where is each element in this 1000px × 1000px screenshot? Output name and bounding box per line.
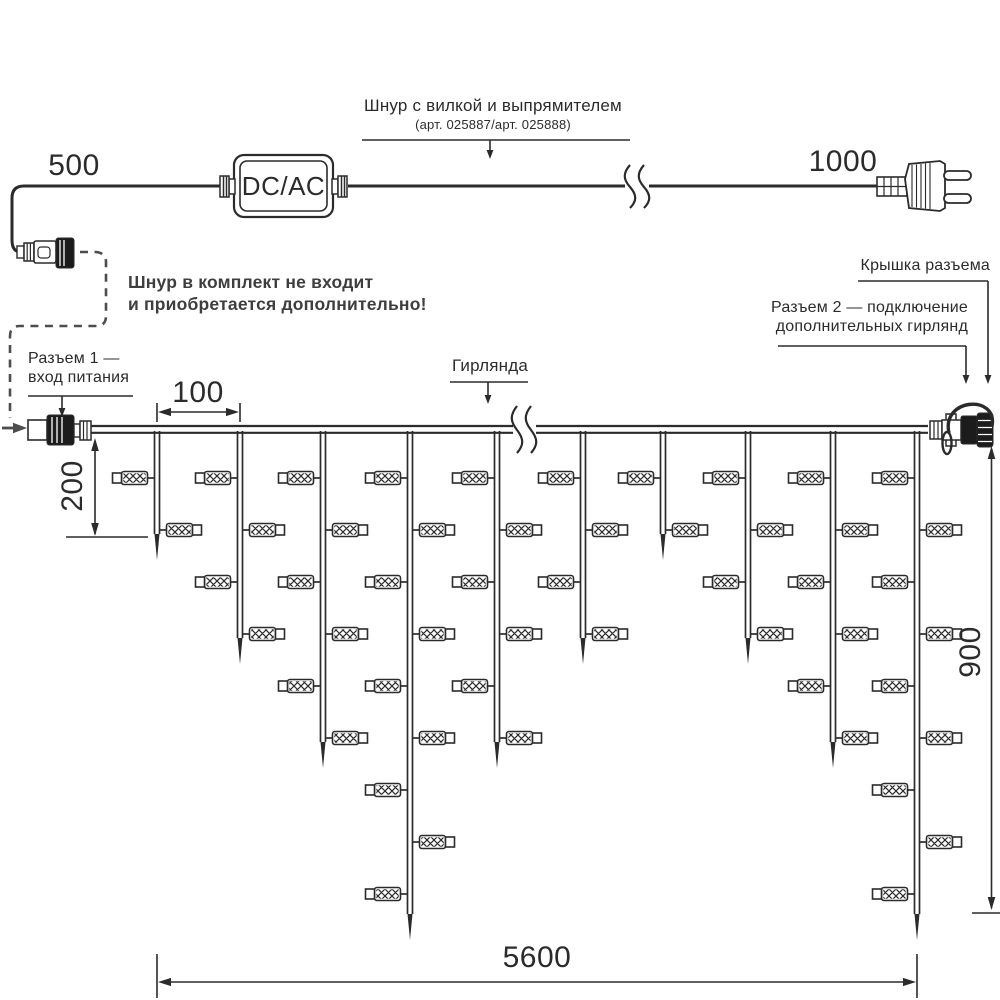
garland-input-connector-icon: [28, 415, 91, 445]
connector2-label-line2: дополнительных гирлянд: [688, 318, 968, 336]
dim-900: [972, 446, 1000, 913]
dim-500-value: 500: [34, 149, 114, 183]
led-lamp-icon: [920, 524, 962, 537]
strand: [873, 431, 962, 940]
strand-tip: [408, 914, 413, 940]
led-lamp-icon: [196, 576, 238, 589]
led-lamp-icon: [366, 888, 408, 901]
plug-prong-top: [944, 171, 971, 180]
strand: [279, 431, 368, 768]
diagram-page: Шнур с вилкой и выпрямителем (арт. 02588…: [0, 0, 1000, 1000]
strand: [453, 431, 542, 768]
not-included-note-line1: Шнур в комплект не входит: [128, 272, 373, 293]
led-lamp-icon: [500, 628, 542, 641]
dim-900-value: 900: [954, 626, 988, 678]
cord-title-leader: [362, 140, 630, 159]
led-lamp-icon: [619, 472, 661, 485]
led-lamp-icon: [113, 472, 155, 485]
led-lamp-icon: [836, 628, 878, 641]
led-lamp-icon: [873, 576, 915, 589]
led-lamp-icon: [366, 576, 408, 589]
cord-connector-icon: [17, 238, 74, 268]
led-lamp-icon: [500, 732, 542, 745]
dim-100-value: 100: [158, 376, 238, 410]
led-lamp-icon: [453, 576, 495, 589]
led-lamp-icon: [279, 472, 321, 485]
strand-tip: [746, 638, 751, 664]
led-lamp-icon: [366, 472, 408, 485]
led-lamp-icon: [873, 784, 915, 797]
strand-tip: [581, 638, 586, 664]
dimension-lines: [66, 403, 1000, 998]
dashed-cord-path: [2, 252, 106, 433]
garland-label: Гирлянда: [400, 356, 580, 376]
strand-tip: [155, 534, 160, 560]
cord-title: Шнур с вилкой и выпрямителем: [343, 96, 643, 116]
garland-strands: [113, 431, 962, 940]
led-lamp-icon: [873, 888, 915, 901]
led-lamp-icon: [873, 472, 915, 485]
cord-subtitle: (арт. 025887/арт. 025888): [343, 117, 643, 132]
led-lamp-icon: [413, 524, 455, 537]
led-lamp-icon: [453, 472, 495, 485]
led-lamp-icon: [243, 524, 285, 537]
strand: [539, 431, 628, 664]
led-lamp-icon: [413, 732, 455, 745]
strand-tip: [495, 742, 500, 768]
led-lamp-icon: [279, 576, 321, 589]
led-lamp-icon: [326, 524, 368, 537]
led-lamp-icon: [704, 472, 746, 485]
connector1-leader: [28, 396, 133, 417]
strand: [113, 431, 202, 560]
strand: [704, 431, 793, 664]
connector2-leader: [778, 346, 969, 384]
led-lamp-icon: [751, 628, 793, 641]
strand-tip: [915, 914, 920, 940]
led-lamp-icon: [920, 836, 962, 849]
led-lamp-icon: [413, 836, 455, 849]
dcac-left-port: [220, 176, 235, 197]
power-cord: [12, 165, 877, 252]
led-lamp-icon: [366, 784, 408, 797]
led-lamp-icon: [413, 628, 455, 641]
dim-1000-value: 1000: [793, 145, 893, 179]
dim-200-value: 200: [56, 460, 90, 512]
strand-tip: [661, 534, 666, 560]
strand-tip: [831, 742, 836, 768]
plug-prong-bottom: [944, 194, 971, 203]
led-lamp-icon: [196, 472, 238, 485]
led-lamp-icon: [586, 524, 628, 537]
led-lamp-icon: [366, 680, 408, 693]
led-lamp-icon: [539, 576, 581, 589]
led-lamp-icon: [500, 524, 542, 537]
power-in-arrow-icon: [2, 423, 27, 433]
led-lamp-icon: [666, 524, 708, 537]
strand-tip: [238, 638, 243, 664]
led-lamp-icon: [873, 680, 915, 693]
led-lamp-icon: [279, 680, 321, 693]
garland-leader: [450, 382, 528, 404]
led-lamp-icon: [751, 524, 793, 537]
strand: [789, 431, 878, 768]
led-lamp-icon: [836, 732, 878, 745]
not-included-note-line2: и приобретается дополнительно!: [128, 294, 427, 315]
led-lamp-icon: [789, 576, 831, 589]
garland-wire: [90, 406, 928, 453]
led-lamp-icon: [920, 732, 962, 745]
led-lamp-icon: [453, 680, 495, 693]
led-lamp-icon: [789, 472, 831, 485]
led-lamp-icon: [326, 628, 368, 641]
strand: [366, 431, 455, 940]
led-lamp-icon: [243, 628, 285, 641]
led-lamp-icon: [326, 732, 368, 745]
dcac-label: DC/AC: [234, 155, 333, 217]
cap-label: Крышка разъема: [770, 257, 990, 275]
led-lamp-icon: [160, 524, 202, 537]
led-lamp-icon: [789, 680, 831, 693]
connector1-label-line1: Разъем 1 —: [28, 350, 120, 368]
connector1-label-line2: вход питания: [28, 369, 129, 387]
garland-end-connector-icon: [930, 404, 993, 454]
led-lamp-icon: [836, 524, 878, 537]
led-lamp-icon: [539, 472, 581, 485]
led-lamp-icon: [586, 628, 628, 641]
strand: [619, 431, 708, 560]
cord-break-icon: [625, 165, 650, 208]
connector2-label-line1: Разъем 2 — подключение: [688, 299, 968, 317]
dcac-right-port: [332, 176, 347, 197]
led-lamp-icon: [704, 576, 746, 589]
strand: [196, 431, 285, 664]
strand-tip: [321, 742, 326, 768]
dim-5600-value: 5600: [477, 941, 597, 975]
garland-break-icon: [512, 406, 537, 453]
